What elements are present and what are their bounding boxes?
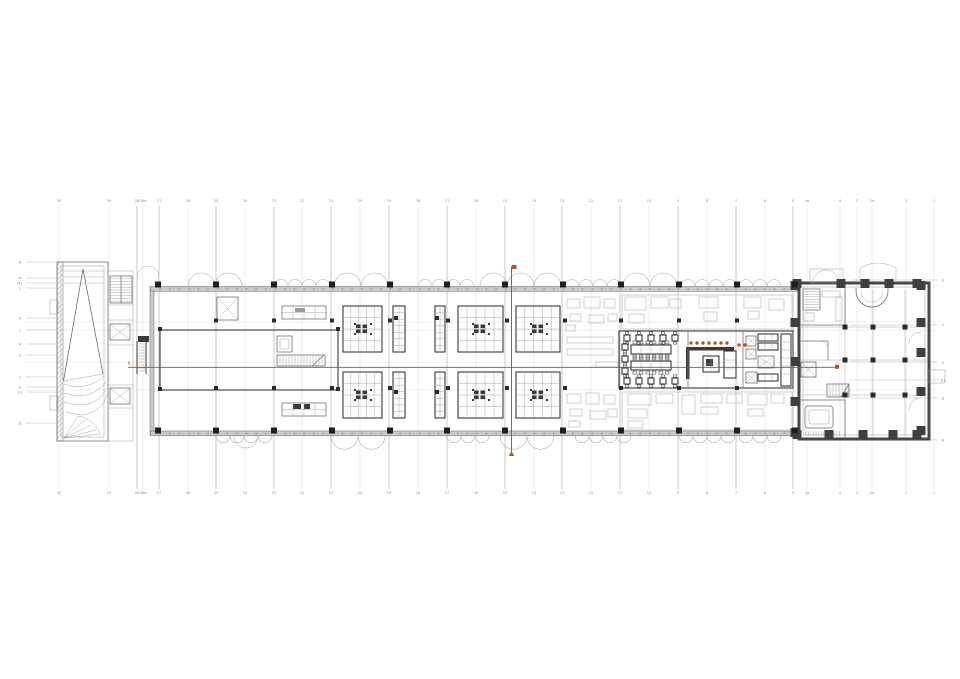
svg-text:4: 4 (839, 491, 842, 495)
svg-text:26: 26 (186, 199, 191, 203)
svg-text:9: 9 (677, 491, 680, 495)
svg-text:17: 17 (445, 199, 450, 203)
svg-text:15: 15 (503, 491, 508, 495)
svg-text:16: 16 (474, 491, 479, 495)
svg-text:E1: E1 (18, 390, 23, 394)
svg-text:6: 6 (764, 199, 767, 203)
svg-text:5: 5 (792, 199, 794, 203)
svg-text:M: M (18, 276, 21, 280)
grid-layer: 30302929282828a28a2727262625252424232322… (17, 199, 945, 495)
svg-text:4a: 4a (805, 491, 810, 495)
svg-text:10: 10 (647, 199, 652, 203)
svg-text:15: 15 (503, 199, 508, 203)
columns-layer (155, 282, 798, 434)
svg-text:20: 20 (358, 491, 363, 495)
svg-text:H: H (19, 342, 22, 346)
svg-text:22: 22 (300, 491, 305, 495)
svg-text:16: 16 (474, 199, 479, 203)
svg-text:19: 19 (387, 199, 392, 203)
svg-text:2: 2 (905, 199, 907, 203)
svg-text:F: F (942, 323, 944, 327)
svg-text:20: 20 (358, 199, 363, 203)
svg-text:14: 14 (532, 199, 537, 203)
svg-text:3: 3 (856, 199, 858, 203)
svg-text:B: B (942, 438, 945, 442)
svg-text:5: 5 (792, 491, 794, 495)
svg-text:28a: 28a (140, 491, 147, 495)
svg-text:M1: M1 (17, 281, 22, 285)
svg-text:13: 13 (560, 199, 565, 203)
svg-text:2a: 2a (870, 199, 875, 203)
floor-plan-svg: 30302929282828a28a2727262625252424232322… (0, 0, 960, 679)
layer-dining (619, 331, 793, 388)
svg-text:23: 23 (272, 491, 277, 495)
svg-text:19: 19 (387, 491, 392, 495)
svg-text:J: J (18, 328, 20, 332)
svg-text:D: D (942, 396, 945, 400)
svg-text:25: 25 (214, 491, 219, 495)
svg-text:K: K (19, 316, 22, 320)
svg-text:13: 13 (560, 491, 565, 495)
svg-text:27: 27 (157, 491, 162, 495)
svg-text:1: 1 (933, 491, 935, 495)
svg-text:G: G (942, 278, 945, 282)
svg-text:17: 17 (445, 491, 450, 495)
svg-text:23: 23 (272, 199, 277, 203)
svg-text:4: 4 (839, 199, 842, 203)
svg-text:E: E (19, 385, 22, 389)
svg-text:N: N (19, 260, 22, 264)
svg-text:29: 29 (107, 199, 112, 203)
svg-text:30: 30 (57, 199, 62, 203)
svg-text:2a: 2a (870, 491, 875, 495)
layer-main_building (150, 287, 797, 436)
layer-right_building (791, 263, 946, 439)
svg-text:12: 12 (589, 199, 594, 203)
svg-text:28a: 28a (140, 199, 147, 203)
annotation-layer: R (128, 265, 839, 456)
svg-text:R: R (128, 361, 131, 366)
svg-text:21: 21 (329, 491, 334, 495)
svg-text:10: 10 (647, 491, 652, 495)
svg-text:24: 24 (243, 491, 248, 495)
svg-text:29: 29 (107, 491, 112, 495)
svg-text:7: 7 (735, 491, 737, 495)
svg-text:18: 18 (416, 491, 421, 495)
floor-plan-canvas: 30302929282828a28a2727262625252424232322… (0, 0, 960, 679)
svg-text:25: 25 (214, 199, 219, 203)
svg-text:3: 3 (856, 491, 858, 495)
svg-text:8: 8 (706, 491, 709, 495)
svg-text:8: 8 (706, 199, 709, 203)
svg-text:G: G (19, 353, 22, 357)
svg-text:E: E (942, 360, 945, 364)
svg-text:11: 11 (618, 491, 623, 495)
svg-text:27: 27 (157, 199, 162, 203)
svg-text:9: 9 (677, 199, 680, 203)
svg-text:F: F (19, 375, 21, 379)
svg-text:11: 11 (618, 199, 623, 203)
svg-text:22: 22 (300, 199, 305, 203)
svg-text:12: 12 (589, 491, 594, 495)
svg-text:2: 2 (905, 491, 907, 495)
svg-text:D: D (19, 421, 22, 425)
svg-text:4a: 4a (805, 199, 810, 203)
svg-text:1: 1 (933, 199, 935, 203)
svg-text:L: L (19, 286, 21, 290)
svg-text:14: 14 (532, 491, 537, 495)
svg-text:6: 6 (764, 491, 767, 495)
svg-text:21: 21 (329, 199, 334, 203)
svg-text:30: 30 (57, 491, 62, 495)
svg-text:18: 18 (416, 199, 421, 203)
svg-text:7: 7 (735, 199, 737, 203)
svg-text:24: 24 (243, 199, 248, 203)
svg-text:26: 26 (186, 491, 191, 495)
